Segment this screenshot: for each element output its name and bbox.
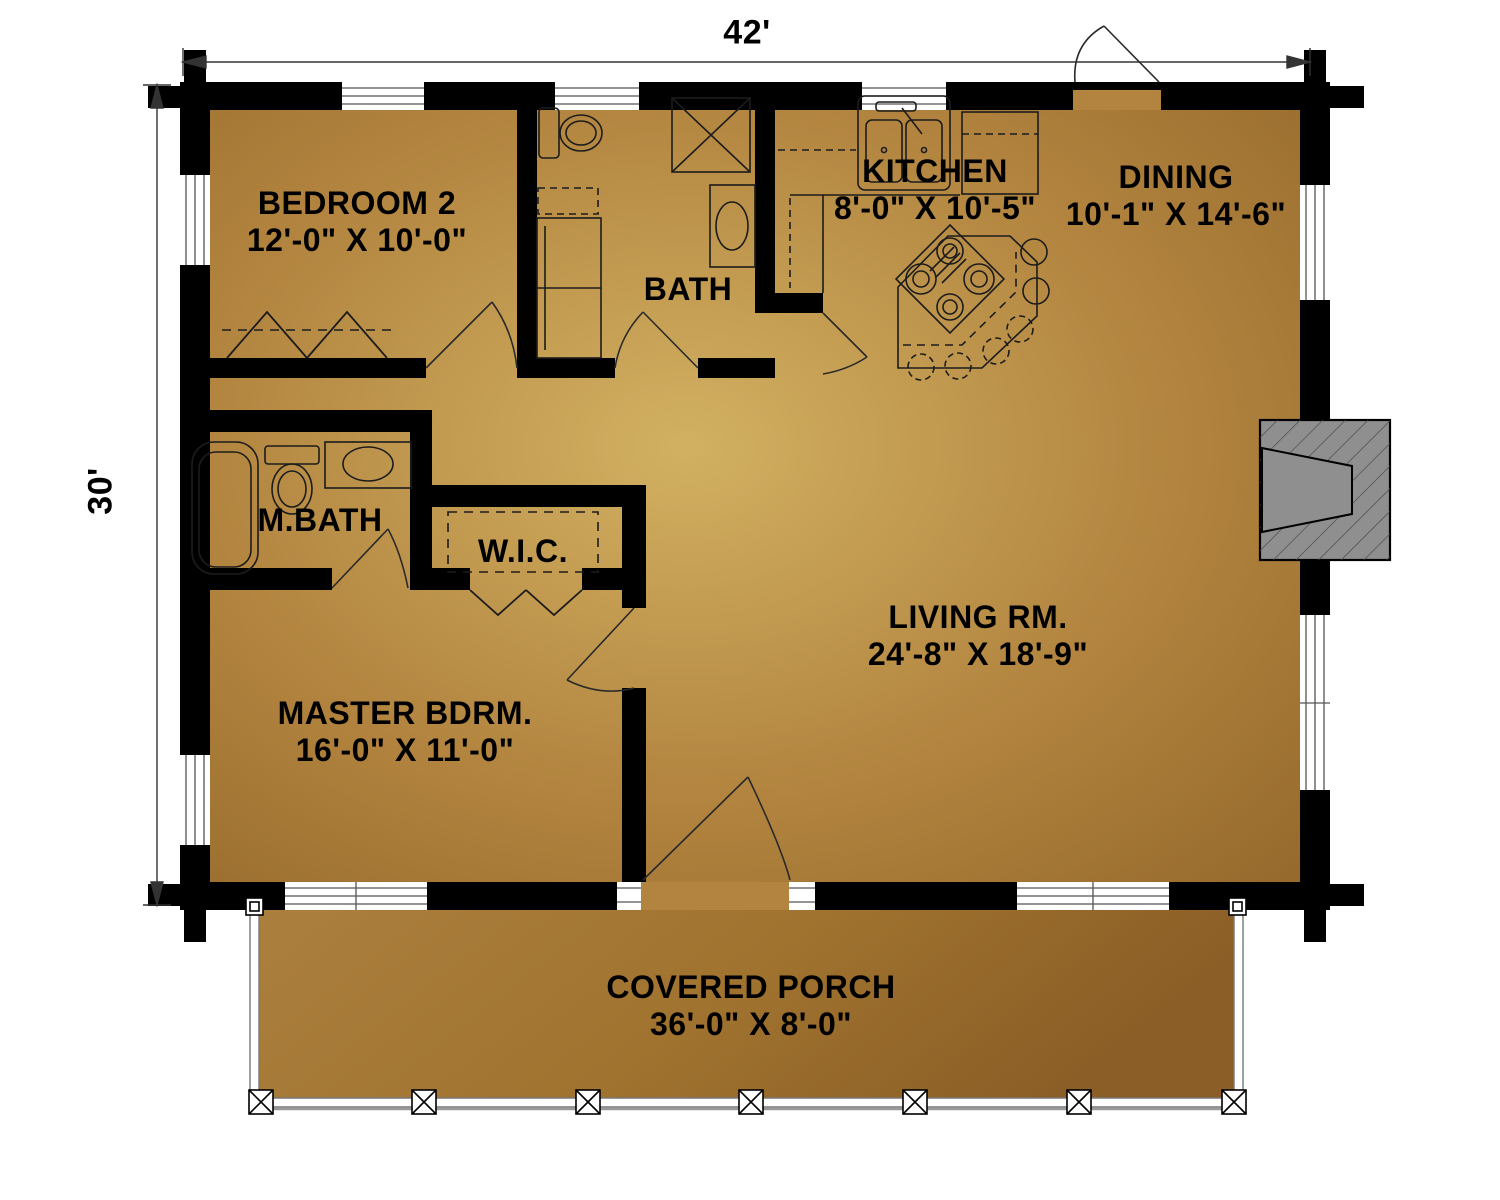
height-dimension-line: [143, 85, 171, 905]
room-dims: 36'-0" X 8'-0": [650, 1008, 852, 1042]
room-label-wic: W.I.C.: [478, 535, 568, 569]
window-living-right: [1300, 615, 1330, 790]
window-dining-right: [1300, 185, 1330, 300]
room-label-bedroom2: BEDROOM 2 12'-0" X 10'-0": [247, 187, 467, 257]
window-bedroom2-top: [342, 82, 424, 110]
room-label-dining: DINING 10'-1" X 14'-6": [1066, 161, 1286, 231]
overall-width-dimension: 42': [723, 14, 770, 53]
room-dims: 16'-0" X 11'-0": [296, 734, 515, 768]
room-name: COVERED PORCH: [606, 971, 895, 1005]
room-name: MASTER BDRM.: [278, 697, 533, 731]
room-name: W.I.C.: [478, 535, 568, 569]
porch-door-sill-right: [789, 882, 815, 910]
room-name: LIVING RM.: [888, 601, 1067, 635]
window-bath-top: [555, 82, 639, 110]
room-name: M.BATH: [257, 504, 382, 538]
floor-plan: 42' 30' BEDROOM 2 12'-0" X 10'-0" BATH K…: [0, 0, 1500, 1200]
room-dims: 24'-8" X 18'-9": [868, 638, 1088, 672]
fireplace-icon: [1260, 420, 1390, 560]
room-label-porch: COVERED PORCH 36'-0" X 8'-0": [606, 971, 895, 1041]
room-label-living: LIVING RM. 24'-8" X 18'-9": [868, 601, 1088, 671]
room-name: DINING: [1119, 161, 1234, 195]
room-label-kitchen: KITCHEN 8'-0" X 10'-5": [834, 155, 1036, 225]
entry-door-arc: [1075, 26, 1159, 82]
window-bedroom2-left: [180, 175, 210, 265]
room-dims: 8'-0" X 10'-5": [834, 192, 1036, 226]
window-master-bottom: [285, 882, 427, 910]
porch-door-opening: [641, 882, 789, 910]
room-dims: 10'-1" X 14'-6": [1066, 198, 1286, 232]
porch-door-sill-left: [617, 882, 641, 910]
overall-height-dimension: 30': [82, 467, 121, 514]
room-label-master-bedroom: MASTER BDRM. 16'-0" X 11'-0": [278, 697, 533, 767]
room-dims: 12'-0" X 10'-0": [247, 224, 467, 258]
entry-door-opening: [1073, 90, 1161, 110]
room-label-master-bath: M.BATH: [257, 504, 382, 538]
room-name: BATH: [644, 273, 733, 307]
window-master-left: [180, 755, 210, 845]
window-living-bottom: [1017, 882, 1169, 910]
room-name: BEDROOM 2: [258, 187, 456, 221]
room-label-bath: BATH: [644, 273, 733, 307]
room-name: KITCHEN: [862, 155, 1008, 189]
